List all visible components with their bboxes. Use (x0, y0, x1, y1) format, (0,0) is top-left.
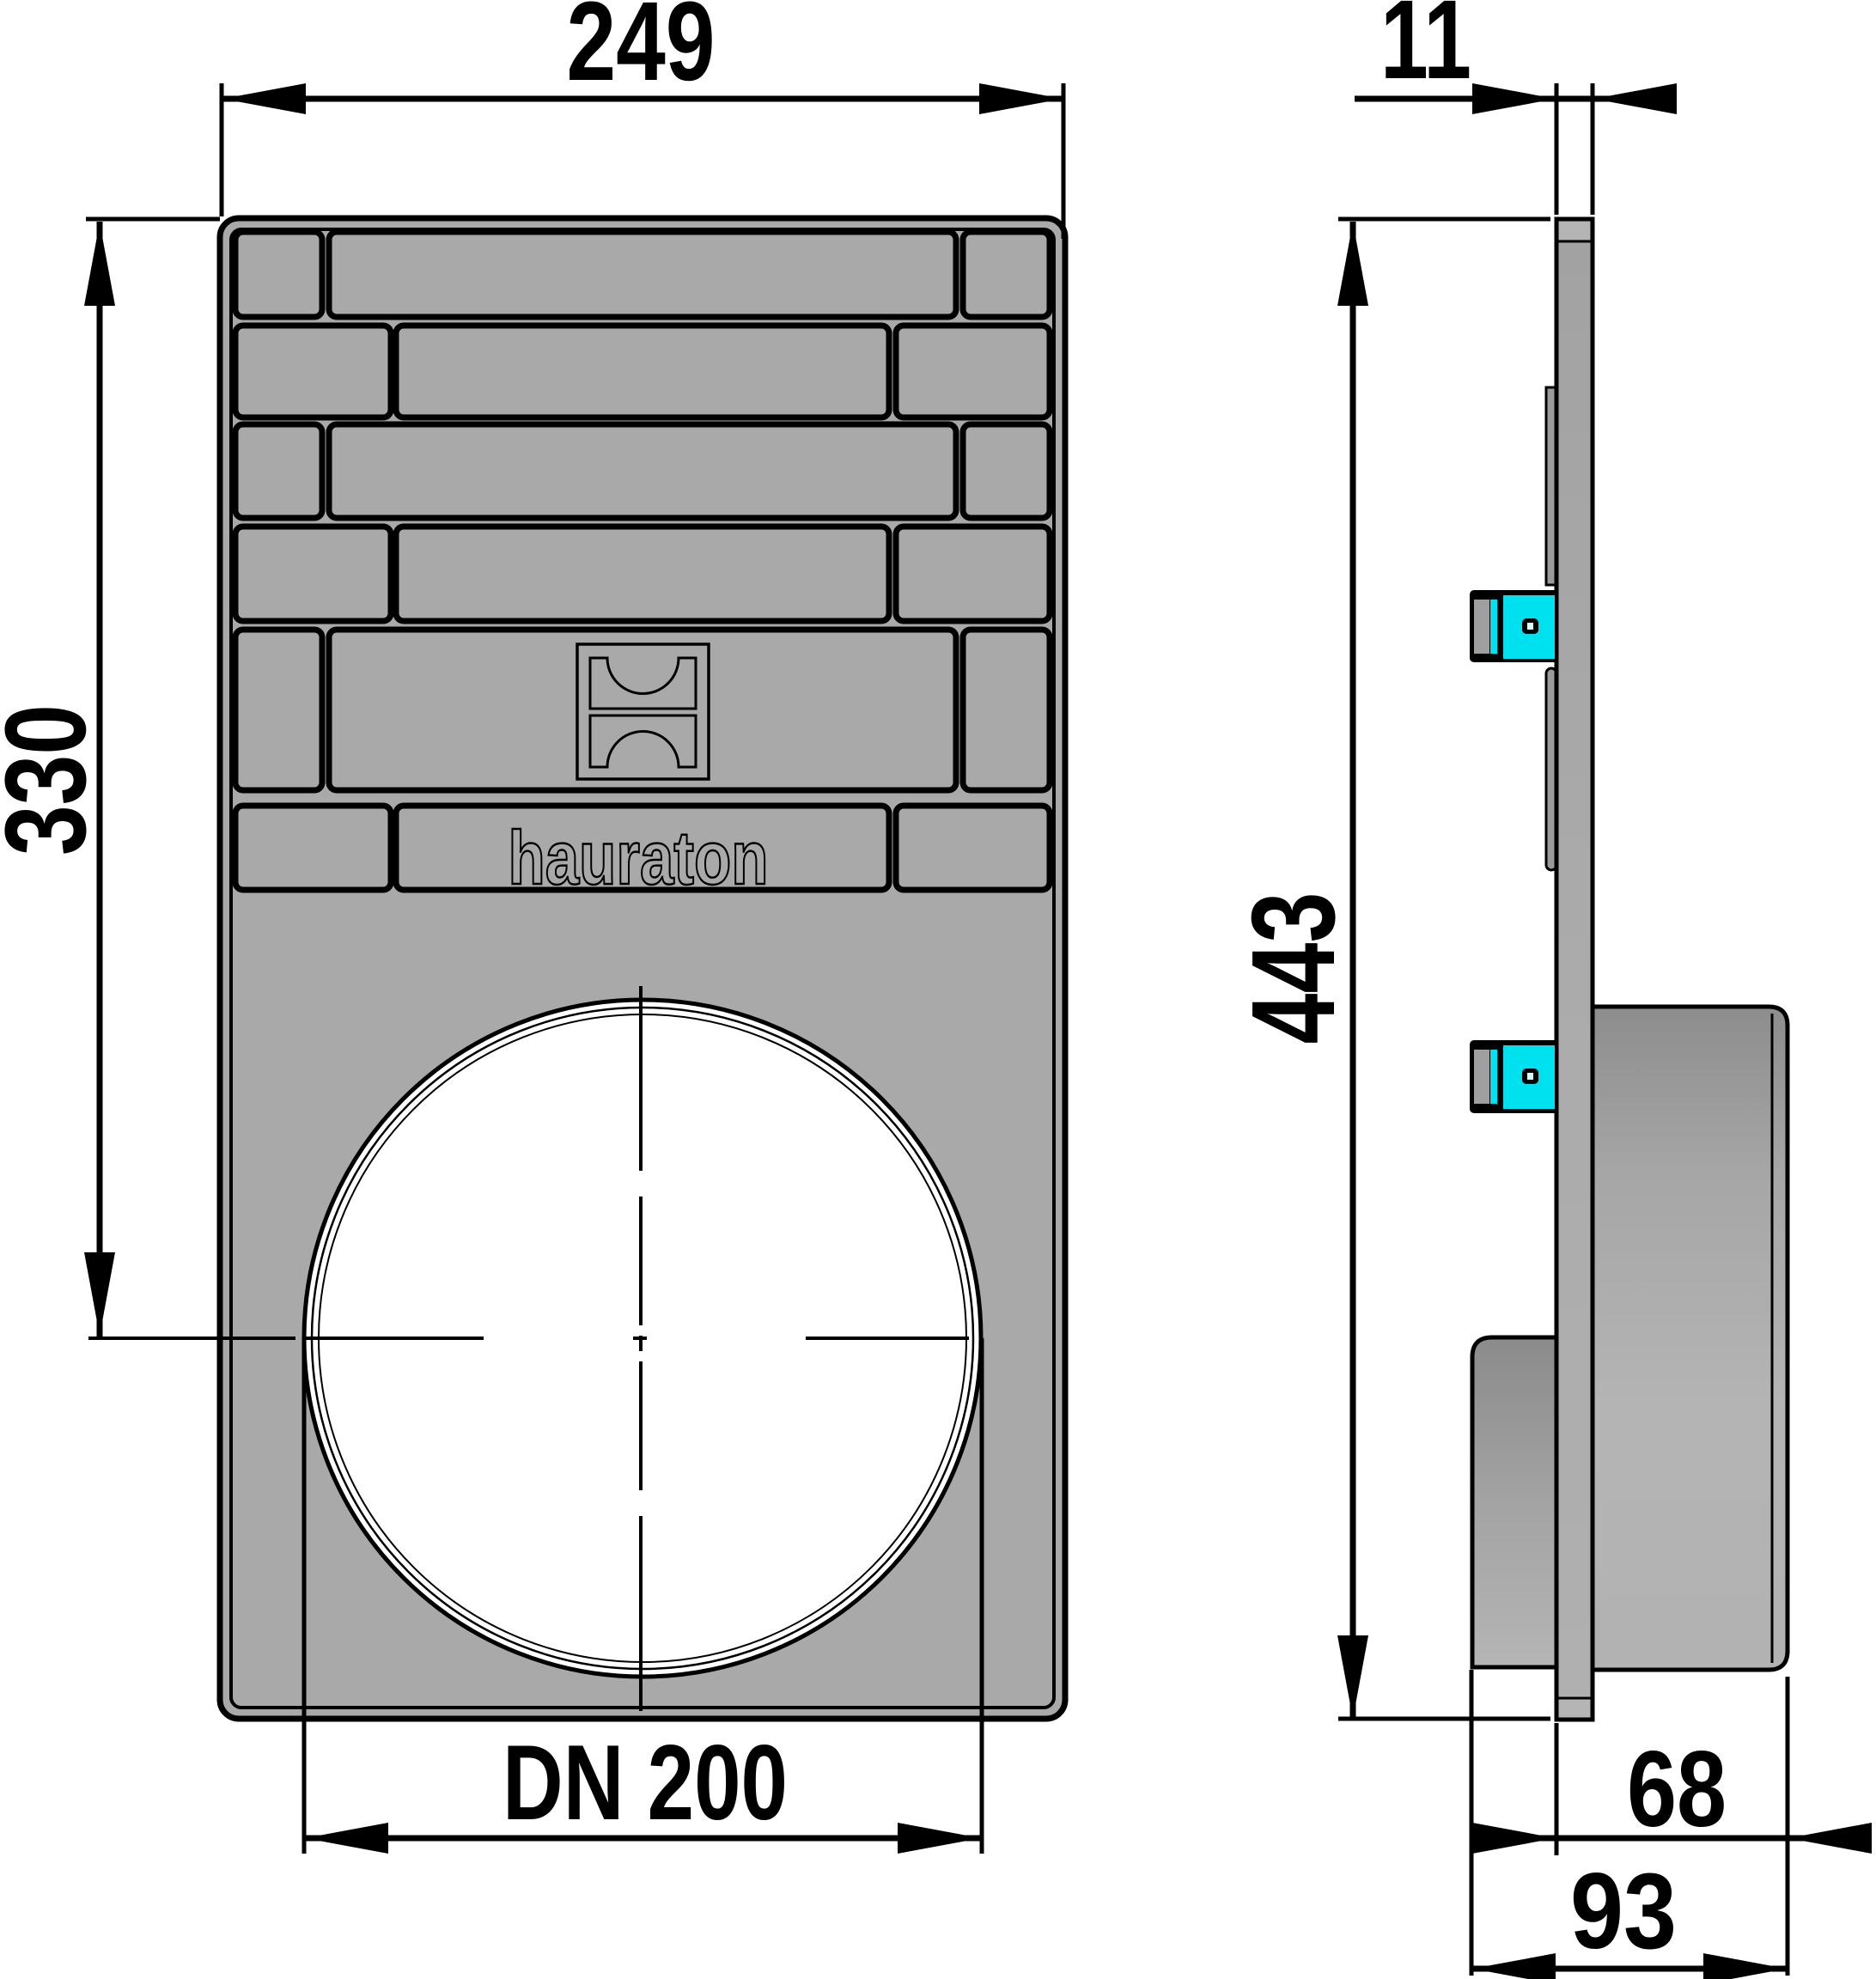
svg-text:hauraton: hauraton (509, 815, 769, 900)
svg-text:68: 68 (1627, 1730, 1727, 1849)
svg-text:443: 443 (1227, 892, 1360, 1044)
svg-text:11: 11 (1380, 0, 1471, 102)
svg-text:249: 249 (567, 0, 716, 104)
svg-text:DN 200: DN 200 (502, 1724, 788, 1842)
svg-text:93: 93 (1570, 1852, 1677, 1971)
svg-text:330: 330 (0, 704, 110, 856)
